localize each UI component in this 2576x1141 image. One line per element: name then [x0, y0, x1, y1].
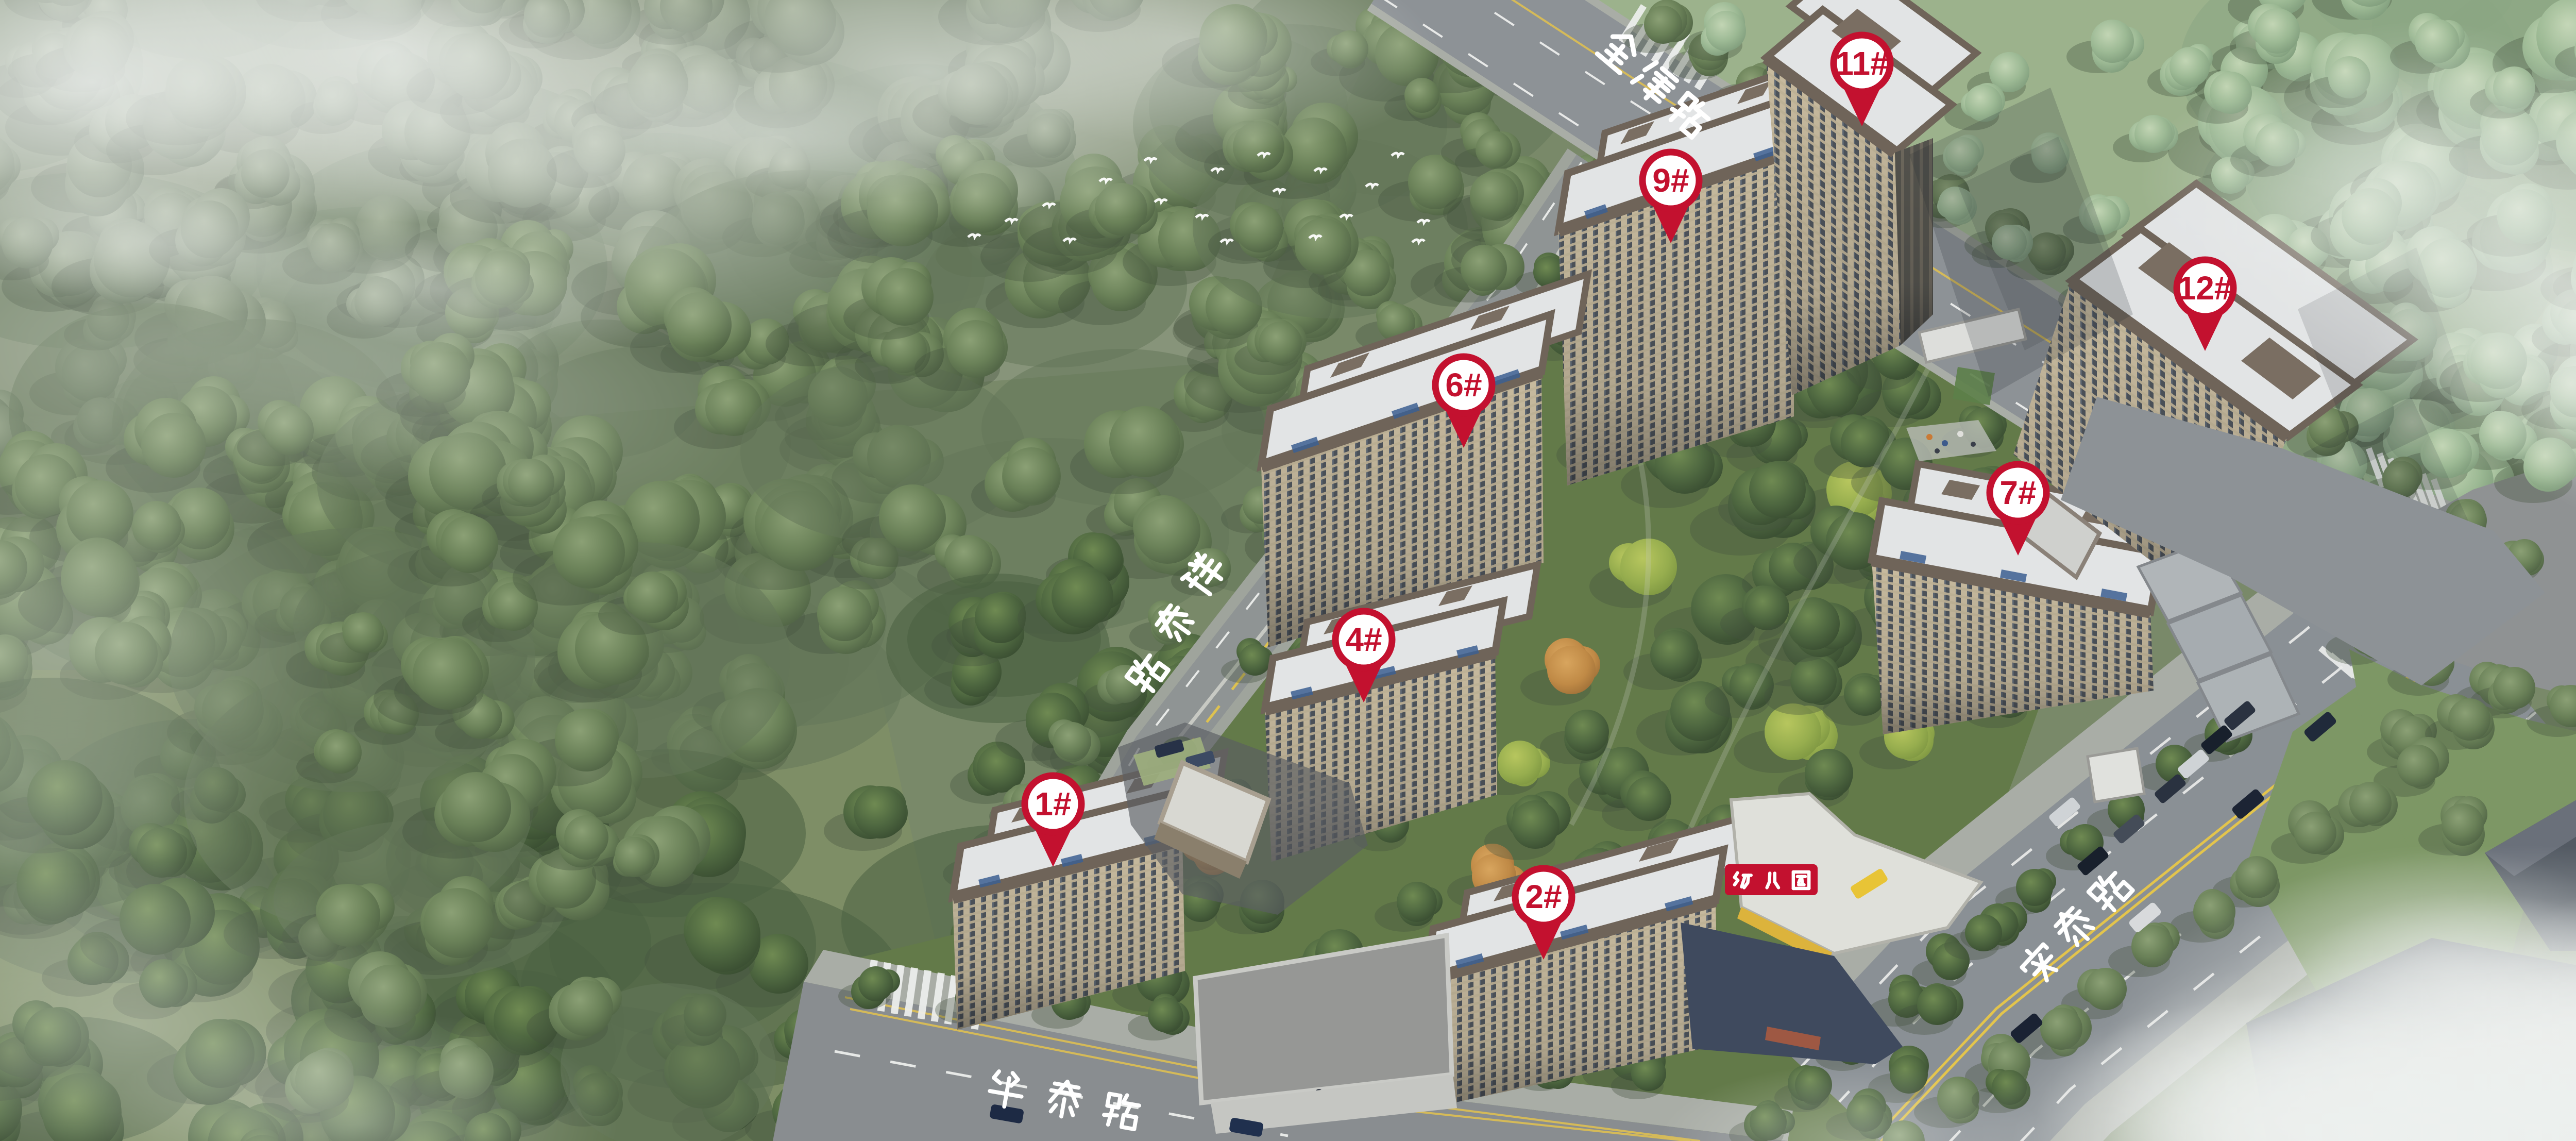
svg-text:6#: 6#	[1445, 366, 1482, 404]
svg-text:9#: 9#	[1652, 162, 1689, 199]
svg-text:7#: 7#	[1999, 474, 2036, 511]
svg-text:2#: 2#	[1525, 878, 1562, 915]
svg-text:1#: 1#	[1035, 785, 1071, 823]
svg-text:12#: 12#	[2178, 270, 2233, 307]
svg-text:11#: 11#	[1835, 45, 1888, 82]
svg-text:4#: 4#	[1345, 621, 1382, 658]
